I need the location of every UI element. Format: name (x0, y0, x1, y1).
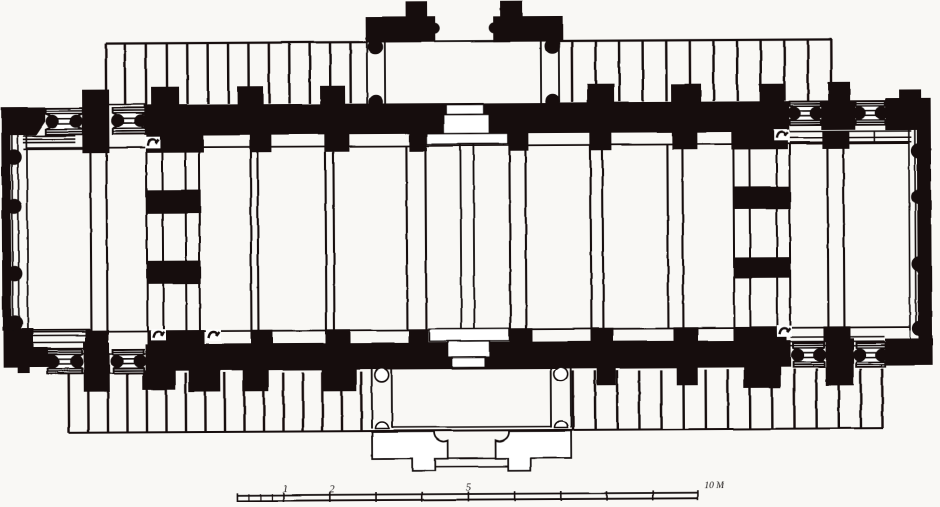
svg-text:10 M: 10 M (704, 481, 725, 491)
svg-text:1: 1 (283, 484, 288, 495)
svg-text:2: 2 (329, 484, 335, 495)
svg-text:5: 5 (466, 482, 471, 493)
